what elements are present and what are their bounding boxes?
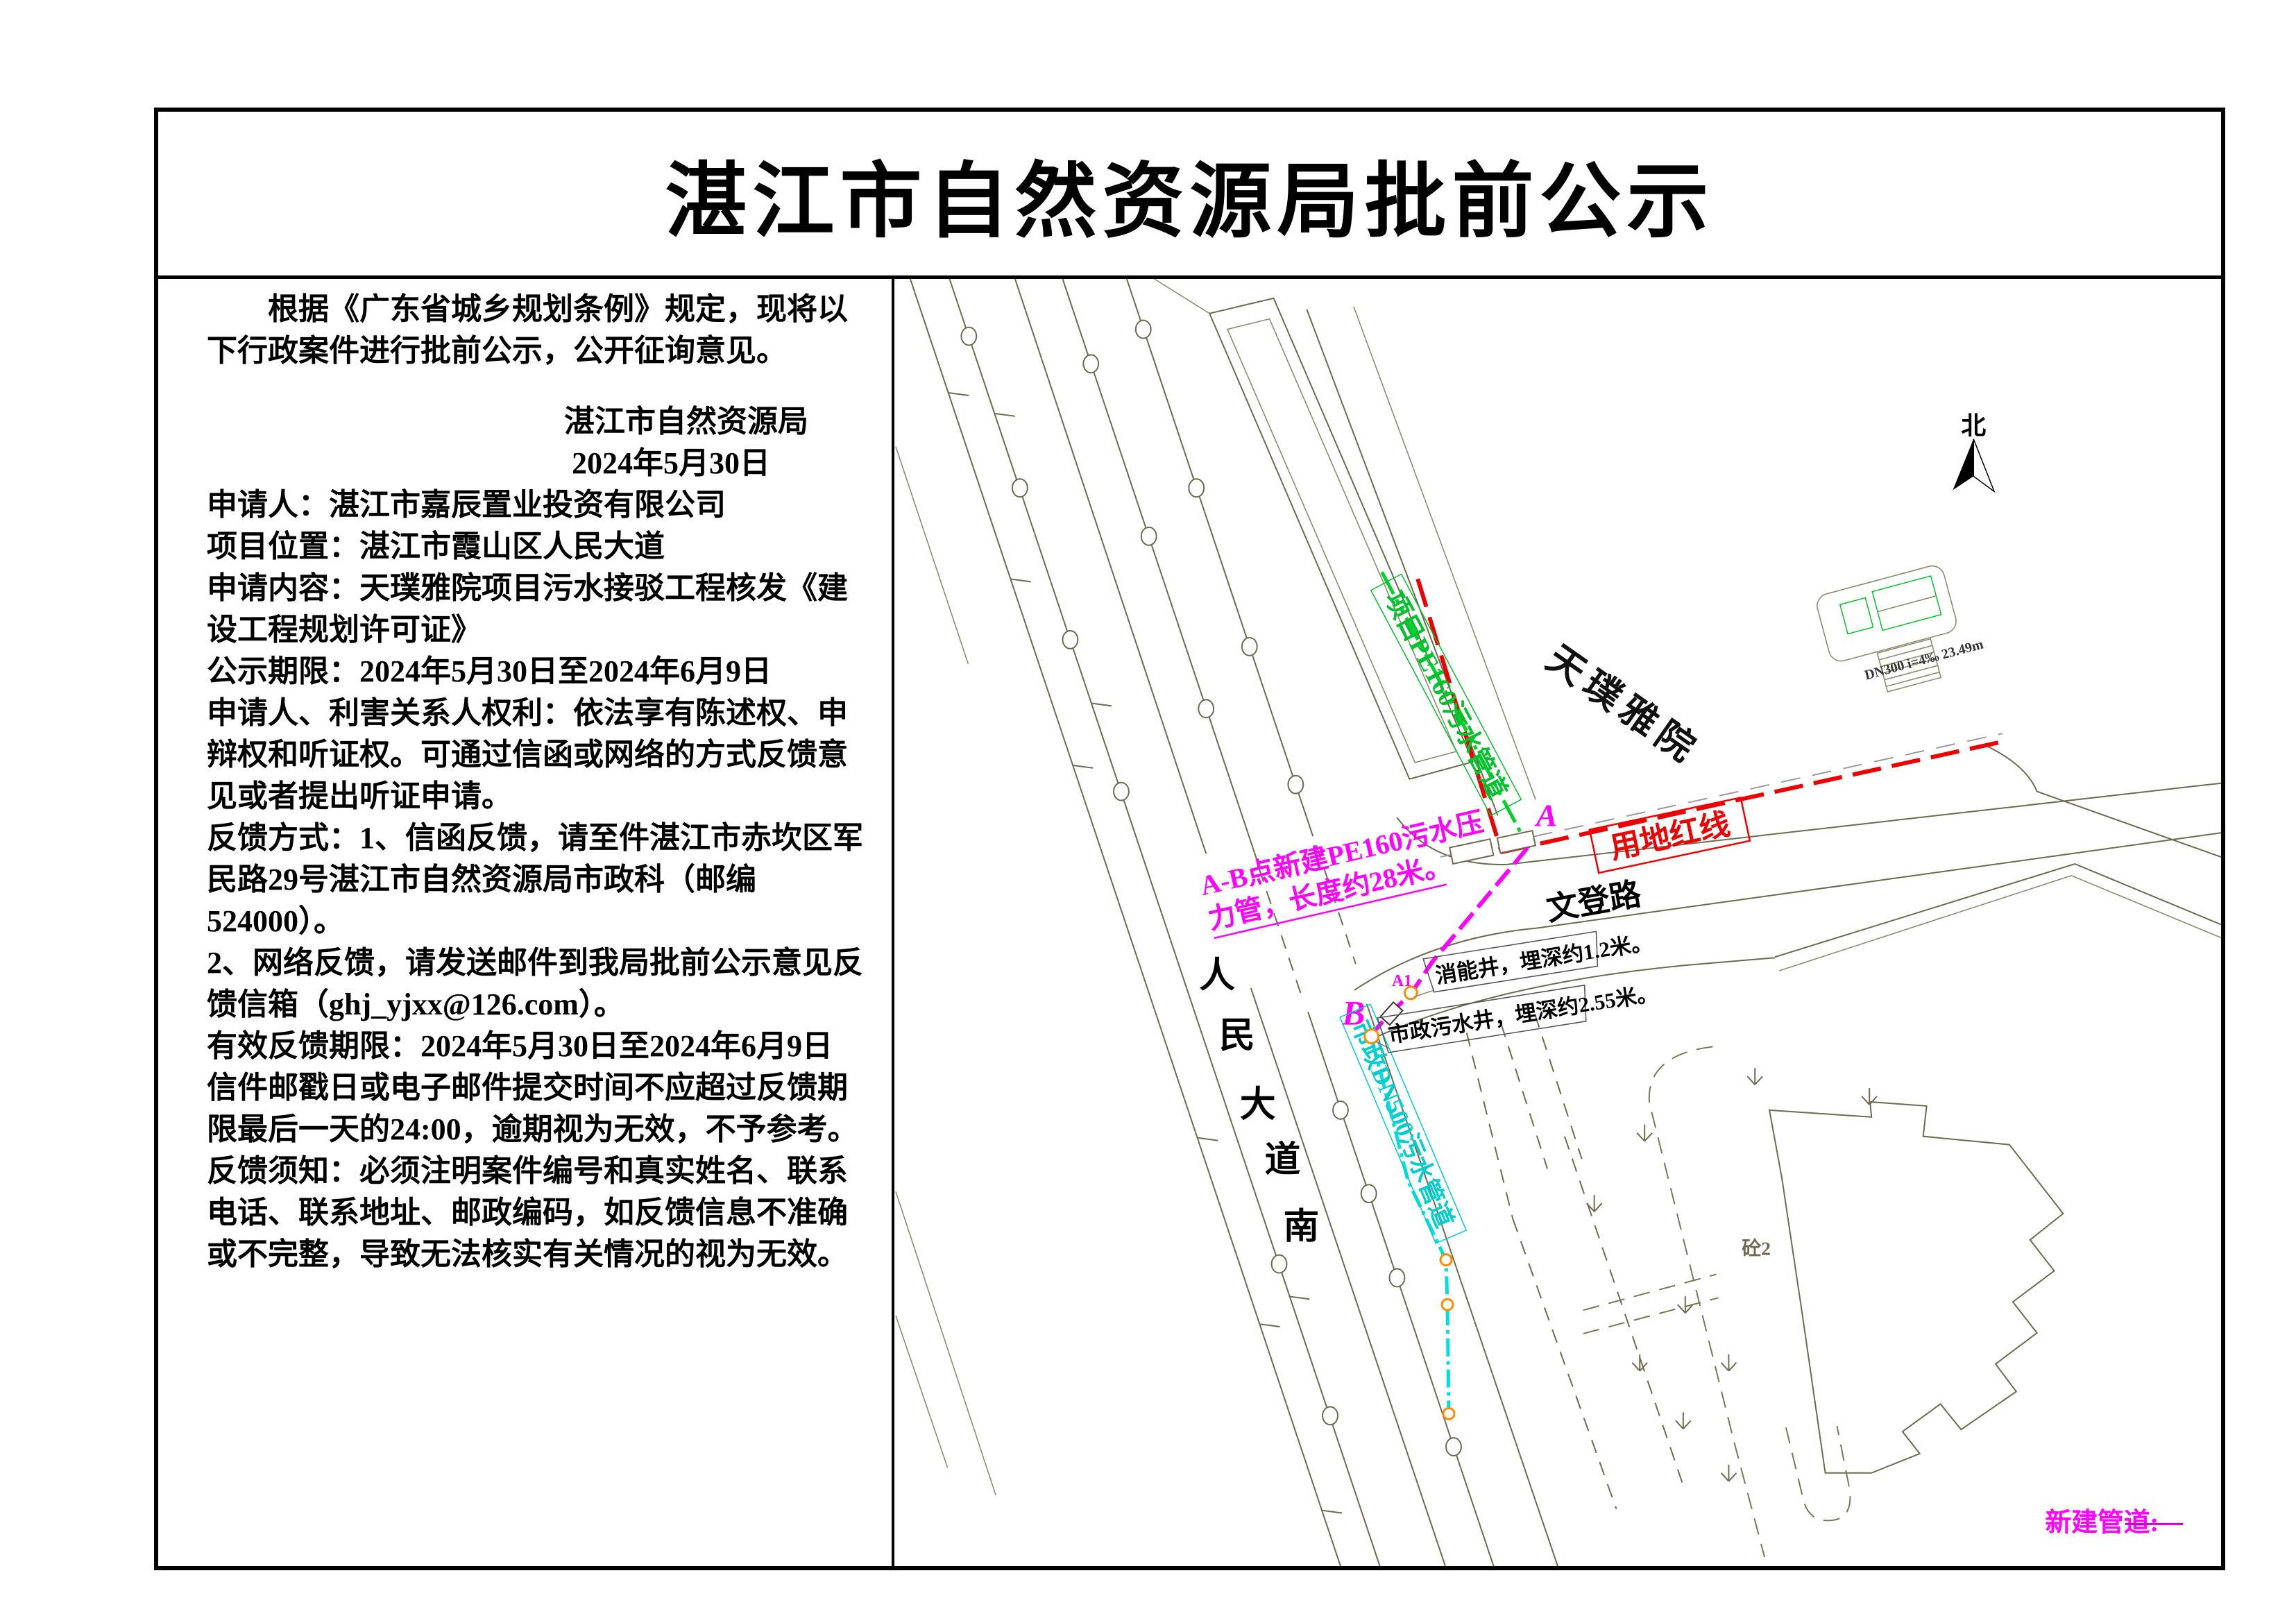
tree-icon bbox=[1632, 1354, 1647, 1371]
building-label: 砼2 bbox=[1742, 1239, 1771, 1260]
municipal-pipe-cyan: 市政DN500污水管道 bbox=[1340, 1004, 1466, 1419]
tree-icon bbox=[1721, 1465, 1737, 1481]
energy-well-label: 消能井，埋深约1.2米。 bbox=[1423, 923, 1654, 993]
north-label: 北 bbox=[1961, 412, 1986, 440]
tree-icon bbox=[1721, 1354, 1737, 1371]
road-line bbox=[896, 1191, 996, 1495]
well-annotations: 消能井，埋深约1.2米。 市政污水井，埋深约2.55米。 bbox=[1365, 923, 1660, 1053]
location-line: 项目位置：湛江市霞山区人民大道 bbox=[207, 526, 871, 568]
pipe-node bbox=[1443, 1408, 1454, 1419]
feedback-mail-line: 反馈方式：1、信函反馈，请至件湛江市赤坎区军民路29号湛江市自然资源局市政科（邮… bbox=[207, 817, 871, 942]
tree-icon bbox=[1637, 1125, 1652, 1141]
svg-text:消能井，埋深约1.2米。: 消能井，埋深约1.2米。 bbox=[1434, 931, 1654, 988]
pump-station-detail: DN300 i=4‰ 23.49m bbox=[1814, 563, 1985, 704]
road-ticks bbox=[949, 393, 1342, 1513]
feedback-online-line: 2、网络反馈，请发送邮件到我局批前公示意见反馈信箱（ghj_yjxx@126.c… bbox=[207, 942, 871, 1026]
well-node-b bbox=[1365, 1030, 1379, 1044]
feedback-note-line: 反馈须知：必须注明案件编号和真实姓名、联系电话、联系地址、邮政编码，如反馈信息不… bbox=[207, 1150, 871, 1275]
north-arrow-icon bbox=[1953, 439, 1973, 491]
green-pipe-label: 项目PE160污水管道 bbox=[1371, 574, 1521, 815]
road-line bbox=[896, 447, 968, 664]
well-node-a1 bbox=[1404, 987, 1417, 999]
signature-org: 湛江市自然资源局 bbox=[207, 401, 871, 443]
signature-date: 2024年5月30日 bbox=[207, 443, 871, 484]
document-body: 根据《广东省城乡规划条例》规定，现将以下行政案件进行批前公示，公开征询意见。 湛… bbox=[158, 279, 2221, 1566]
notice-intro: 根据《广东省城乡规划条例》规定，现将以下行政案件进行批前公示，公开征询意见。 bbox=[207, 289, 871, 372]
pipe-node bbox=[1440, 1255, 1452, 1266]
pipe-node bbox=[1442, 1299, 1453, 1310]
legend-new-pipe-label: 新建管道: bbox=[2046, 1508, 2159, 1537]
site-plan-map: 砼2 bbox=[894, 279, 2221, 1566]
red-line-label: 用地红线 bbox=[1590, 797, 1750, 873]
content-line: 申请内容：天璞雅院项目污水接驳工程核发《建设工程规划许可证》 bbox=[207, 568, 871, 651]
parcel-dashed-boundary bbox=[1583, 1046, 1851, 1557]
notice-document: 湛江市自然资源局批前公示 根据《广东省城乡规划条例》规定，现将以下行政案件进行批… bbox=[0, 0, 2296, 1623]
signature-block: 湛江市自然资源局 2024年5月30日 bbox=[207, 401, 871, 484]
tree-icon bbox=[1676, 1412, 1691, 1429]
renmin-char: 南 bbox=[1283, 1207, 1319, 1247]
renmin-char: 民 bbox=[1219, 1016, 1255, 1055]
road-line bbox=[1127, 279, 1313, 836]
project-name-label: 天璞雅院 bbox=[1539, 638, 1708, 773]
title-band: 湛江市自然资源局批前公示 bbox=[158, 112, 2221, 279]
road-line bbox=[950, 279, 1380, 1566]
site-plan-svg: 砼2 bbox=[894, 279, 2221, 1566]
renmin-char: 大 bbox=[1240, 1085, 1276, 1125]
applicant-line: 申请人：湛江市嘉辰置业投资有限公司 bbox=[207, 484, 871, 526]
feedback-deadline-line: 信件邮戳日或电子邮件提交时间不应超过反馈期限最后一天的24:00，逾期视为无效，… bbox=[207, 1067, 871, 1150]
point-a-label: A bbox=[1534, 797, 1557, 833]
legend: 新建管道: bbox=[2046, 1508, 2184, 1537]
document-border: 湛江市自然资源局批前公示 根据《广东省城乡规划条例》规定，现将以下行政案件进行批… bbox=[154, 108, 2225, 1570]
notice-text-panel: 根据《广东省城乡规划条例》规定，现将以下行政案件进行批前公示，公开征询意见。 湛… bbox=[158, 279, 894, 1566]
renmin-char: 人 bbox=[1199, 956, 1235, 996]
road-line bbox=[896, 1316, 948, 1468]
road-line bbox=[910, 279, 1341, 1566]
project-pipe-green: 项目PE160污水管道 bbox=[1371, 572, 1527, 844]
page-title: 湛江市自然资源局批前公示 bbox=[665, 135, 1714, 253]
feedback-valid-line: 有效反馈期限：2024年5月30日至2024年6月9日 bbox=[207, 1026, 871, 1067]
renmin-char: 道 bbox=[1265, 1140, 1301, 1180]
north-arrow-icon bbox=[1973, 439, 1994, 492]
land-use-red-line: 用地红线 bbox=[1418, 579, 2008, 873]
road-line bbox=[1251, 988, 1445, 1566]
tree-icon bbox=[1747, 1068, 1762, 1085]
building-footprint-southeast: 砼2 bbox=[1742, 1102, 2063, 1473]
rights-line: 申请人、利害关系人权利：依法享有陈述权、申辩权和听证权。可通过信函或网络的方式反… bbox=[207, 692, 871, 817]
period-line: 公示期限：2024年5月30日至2024年6月9日 bbox=[207, 651, 871, 692]
road-line bbox=[1015, 279, 1206, 853]
municipal-well-label: 市政污水井，埋深约2.55米。 bbox=[1377, 974, 1660, 1053]
north-compass: 北 bbox=[1953, 412, 1994, 492]
svg-text:项目PE160污水管道: 项目PE160污水管道 bbox=[1379, 587, 1513, 804]
new-pipe-magenta: A A1 B A-B点新建PE160污水压 力管，长度约28米。 bbox=[1198, 797, 1558, 1034]
tree-symbols bbox=[1587, 1068, 1877, 1481]
ab-pipe-label: A-B点新建PE160污水压 力管，长度约28米。 bbox=[1198, 806, 1495, 938]
